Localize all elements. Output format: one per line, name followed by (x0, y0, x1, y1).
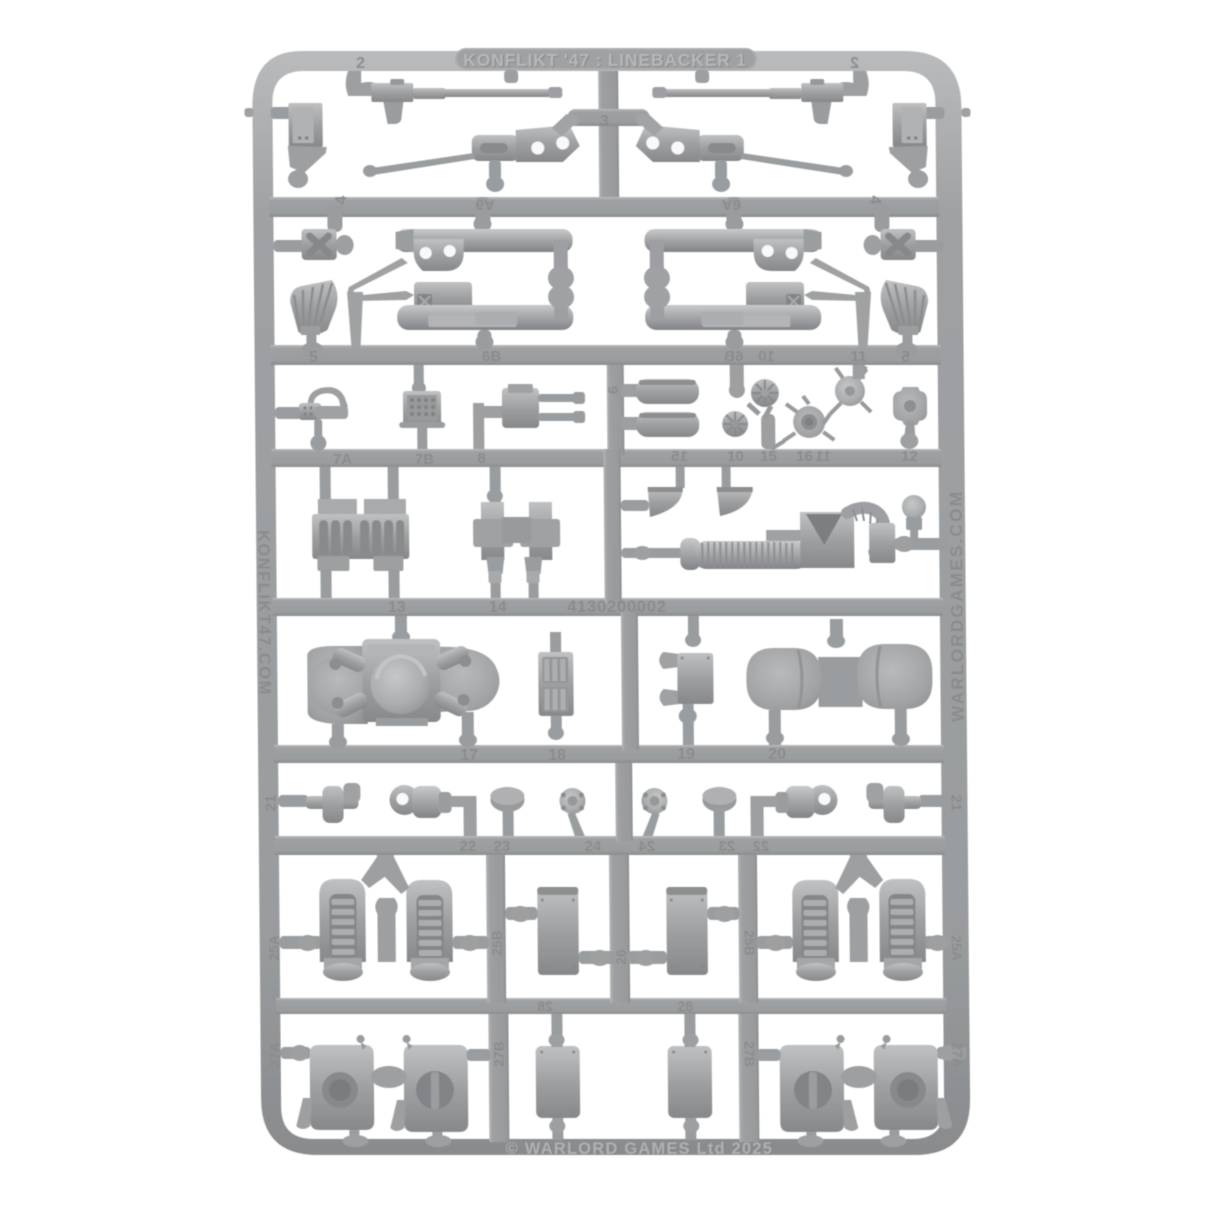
svg-text:14: 14 (489, 599, 507, 616)
svg-text:15: 15 (671, 448, 688, 465)
svg-text:2: 2 (850, 55, 859, 72)
svg-text:5: 5 (309, 349, 318, 366)
svg-text:21: 21 (262, 795, 279, 812)
svg-text:7A: 7A (333, 451, 352, 468)
svg-text:2: 2 (356, 55, 365, 72)
svg-text:6B: 6B (482, 348, 501, 365)
svg-text:25A: 25A (266, 935, 282, 961)
svg-text:25B: 25B (742, 930, 758, 956)
svg-text:27A: 27A (267, 1042, 283, 1068)
svg-text:6: 6 (605, 386, 622, 394)
svg-text:13: 13 (388, 599, 406, 616)
svg-text:8: 8 (477, 450, 485, 467)
svg-text:26: 26 (613, 949, 629, 965)
svg-text:11: 11 (815, 448, 831, 465)
svg-text:19: 19 (677, 746, 695, 763)
svg-text:18: 18 (548, 747, 566, 764)
svg-text:25A: 25A (949, 935, 965, 961)
svg-text:5: 5 (901, 349, 910, 366)
svg-text:KONFLIKT47.COM: KONFLIKT47.COM (254, 530, 273, 696)
svg-text:© WARLORD GAMES Ltd 2025: © WARLORD GAMES Ltd 2025 (506, 1140, 774, 1158)
svg-text:28: 28 (677, 998, 693, 1014)
svg-text:16: 16 (796, 448, 813, 465)
svg-text:7B: 7B (415, 451, 434, 468)
svg-text:23: 23 (493, 838, 510, 855)
svg-text:3: 3 (600, 113, 609, 130)
svg-text:10: 10 (758, 348, 775, 365)
svg-text:KONFLIKT '47 : LINEBACKER 1: KONFLIKT '47 : LINEBACKER 1 (463, 50, 747, 70)
svg-text:4130200002: 4130200002 (567, 597, 667, 616)
svg-text:6A: 6A (476, 196, 495, 213)
svg-text:6B: 6B (724, 348, 743, 365)
svg-text:12: 12 (901, 448, 918, 465)
svg-text:10: 10 (727, 448, 744, 465)
svg-text:22: 22 (752, 838, 769, 855)
svg-text:21: 21 (947, 795, 964, 812)
svg-text:WARLORDGAMES.COM: WARLORDGAMES.COM (946, 490, 968, 722)
svg-text:20: 20 (768, 746, 786, 763)
svg-text:17: 17 (460, 747, 478, 764)
svg-text:4: 4 (866, 196, 883, 205)
svg-text:27B: 27B (491, 1041, 507, 1067)
svg-text:23: 23 (718, 838, 735, 855)
svg-text:27B: 27B (742, 1041, 758, 1067)
svg-text:27A: 27A (950, 1042, 966, 1068)
svg-text:6A: 6A (721, 196, 740, 213)
svg-text:15: 15 (760, 448, 777, 465)
svg-text:25B: 25B (489, 930, 505, 956)
svg-text:28: 28 (537, 998, 553, 1014)
svg-text:11: 11 (851, 348, 867, 365)
svg-text:24: 24 (584, 838, 601, 855)
svg-text:4: 4 (333, 195, 350, 204)
svg-text:24: 24 (638, 838, 655, 855)
svg-text:22: 22 (459, 838, 476, 855)
